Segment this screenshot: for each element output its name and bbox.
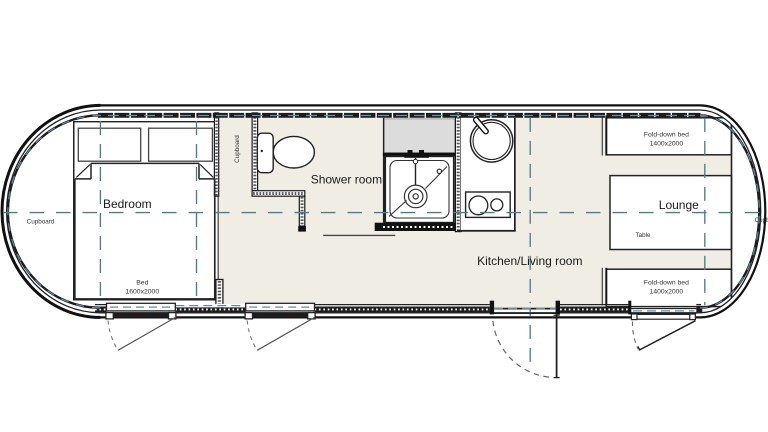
svg-text:1600x2000: 1600x2000 [125,289,159,296]
svg-text:Fold-down bed: Fold-down bed [644,280,689,287]
svg-text:1400x2000: 1400x2000 [650,140,684,147]
svg-text:Bed: Bed [136,280,148,287]
svg-text:Lounge: Lounge [659,198,699,212]
svg-text:Cupboard: Cupboard [755,217,768,224]
svg-text:Table: Table [635,232,651,239]
svg-text:Shower room: Shower room [311,172,382,186]
svg-text:Kitchen/Living room: Kitchen/Living room [477,254,582,268]
svg-text:1400x2000: 1400x2000 [650,289,684,296]
svg-text:Bedroom: Bedroom [103,197,152,211]
svg-text:Cupboard: Cupboard [234,135,241,163]
svg-text:Cupboard: Cupboard [27,219,55,226]
svg-text:Fold-down bed: Fold-down bed [644,131,689,138]
